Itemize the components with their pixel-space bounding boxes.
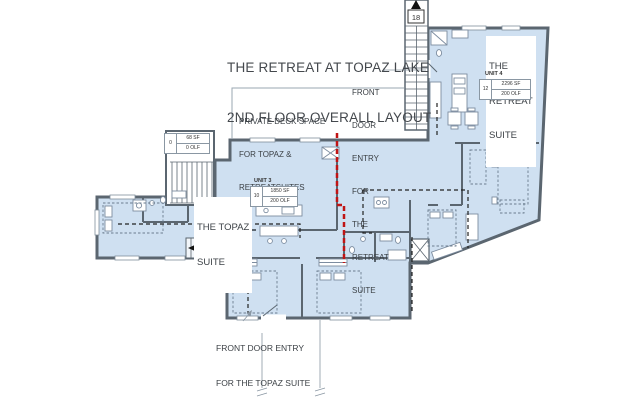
unit3-load-table: 10 1850 SF 200 OLF: [250, 186, 298, 207]
unit3-label: UNIT 3: [254, 178, 271, 185]
floor-plan-page: 18: [0, 0, 640, 414]
frontage-road-note: FRONTAGE ROAD ACCESS OFF OF US 395: [223, 397, 398, 414]
retreat-suite-label: THE RETREAT SUITE: [486, 36, 536, 167]
stair-riser-count: 18: [412, 13, 420, 22]
retreat-entry-note: FRONT DOOR ENTRY FOR THE RETREAT SUITE: [352, 65, 389, 318]
unit4-label: UNIT 4: [485, 71, 502, 78]
elevator-load-table: 0 68 SF 0 OLF: [164, 133, 210, 154]
title-line-1: THE RETREAT AT TOPAZ LAKE: [227, 60, 431, 77]
shaft-chase: [411, 239, 429, 261]
unit4-load-table: 12 2296 SF 200 OLF: [479, 79, 531, 100]
